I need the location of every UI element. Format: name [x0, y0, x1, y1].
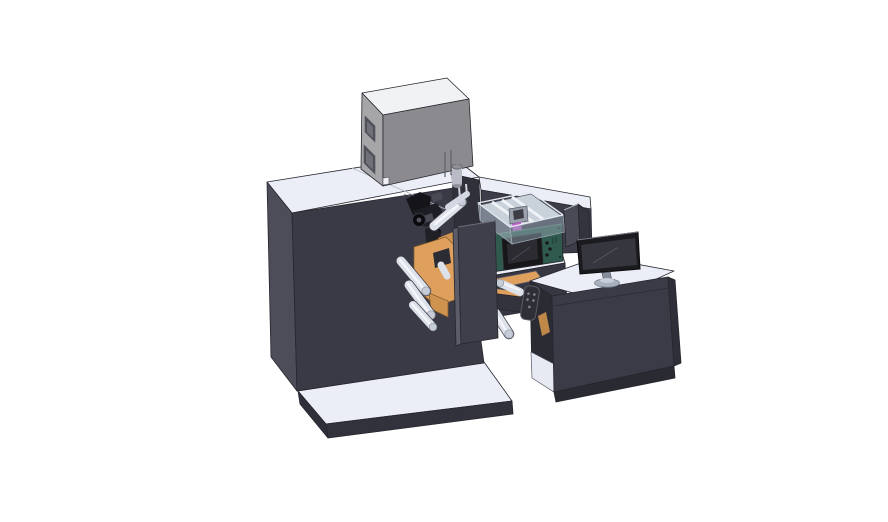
- roller-end-cap: [496, 279, 504, 287]
- hmi-button: [545, 253, 548, 256]
- machine-render: [0, 0, 888, 522]
- hmi-button: [545, 241, 548, 244]
- front-cover-plate: [453, 221, 498, 346]
- cover-plate-face: [458, 221, 498, 344]
- monitor-stand-base-top: [600, 278, 614, 283]
- roller-end-cap: [429, 323, 437, 331]
- cylinder-base-shadow: [452, 184, 462, 188]
- roller-end-cap: [505, 330, 513, 338]
- hmi-button: [548, 247, 551, 250]
- panel-screw: [559, 256, 561, 258]
- roller-end-cap: [422, 287, 430, 295]
- cad-render-canvas: [0, 0, 888, 522]
- cylinder-cap: [452, 164, 462, 169]
- deck-cylinder: [452, 164, 462, 188]
- mechanism-hub-center: [417, 218, 422, 223]
- top-unit-box: [361, 78, 473, 188]
- top-unit-corner-label: [383, 177, 389, 185]
